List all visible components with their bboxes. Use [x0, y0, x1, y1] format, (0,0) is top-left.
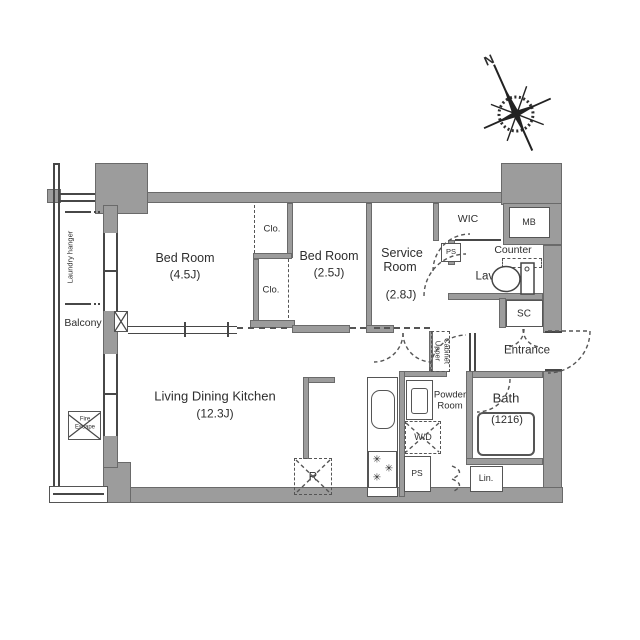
- room-label-wic: WIC: [458, 214, 478, 226]
- kitchen-sink: [371, 390, 395, 429]
- laundry-mark1-dot1: [94, 211, 96, 213]
- lav-counter: [502, 258, 542, 268]
- door-arc-service-left: [374, 333, 403, 362]
- fire-escape-label1: Fire: [80, 417, 90, 424]
- laundry-mark2-dot2: [98, 303, 100, 305]
- compass-needle-ew: [484, 99, 551, 129]
- entrance-jamb-bottom: [545, 369, 562, 371]
- room-label-powder2: Room: [437, 402, 462, 413]
- pipe-shaft-hall-label: PS: [446, 248, 456, 256]
- entrance-step-line1: [469, 333, 471, 371]
- room-label-counter: Counter: [494, 245, 531, 257]
- wall-right-upper: [543, 245, 562, 333]
- sliding-partition: [128, 326, 237, 334]
- entrance-step-line2: [474, 333, 476, 371]
- laundry-hanger-label: Laundry hanger: [66, 231, 75, 284]
- wall-wic-left: [433, 203, 439, 241]
- washer-dryer-label: W/D: [413, 432, 433, 442]
- wall-top-band: [95, 192, 562, 203]
- compass-ring: [494, 92, 539, 137]
- fire-escape-label2: Escape: [75, 425, 95, 432]
- wall-left-c: [103, 435, 118, 468]
- compass-kite-s: [513, 113, 529, 139]
- wall-closet-right-upper: [287, 203, 293, 258]
- meter-box-label: MB: [522, 217, 536, 227]
- compass-needle-diag2: [490, 86, 544, 141]
- door-arc-entrance: [548, 331, 590, 373]
- bedroom2-door: [350, 327, 366, 329]
- closet-upper-door: [254, 205, 255, 253]
- closet-lower-label: Clo.: [263, 286, 280, 297]
- window-ldk-tick: [103, 393, 118, 395]
- shutter-box: [114, 311, 128, 332]
- room-size-bath: (1216): [491, 414, 523, 426]
- stove-burner-icon-3: ✳: [373, 472, 381, 483]
- floor-plan: Laundry hanger Balcony Fire Escape MB PS…: [0, 0, 640, 640]
- window-bedroom1-tick: [103, 270, 118, 272]
- room-label-lav: Lav.: [476, 271, 497, 284]
- room-label-bedroom1: Bed Room: [155, 251, 214, 265]
- room-label-service1: Service: [381, 246, 423, 260]
- service-door-opening: [374, 327, 430, 329]
- window-ldk: [103, 354, 118, 436]
- room-label-bath: Bath: [493, 392, 520, 407]
- laundry-mark2: [65, 303, 91, 305]
- room-label-entrance: Entrance: [504, 345, 550, 358]
- sliding-partition-tick2: [227, 322, 229, 337]
- pipe-shaft-kitchen-label: PS: [411, 469, 422, 479]
- closet-upper-label: Clo.: [264, 225, 281, 236]
- room-label-ldk: Living Dining Kitchen: [154, 390, 275, 405]
- room-size-service: (2.8J): [386, 288, 417, 301]
- wall-right-lower: [543, 371, 562, 491]
- closet-lower-door: [288, 259, 289, 318]
- laundry-mark1: [65, 211, 91, 213]
- room-size-bedroom2: (2.5J): [314, 266, 345, 279]
- balcony-outer-line1: [53, 163, 55, 503]
- wall-bath-left: [466, 371, 473, 465]
- stove-burner-icon-2: ✳: [385, 463, 393, 474]
- wall-sc-left: [499, 298, 506, 328]
- wall-bedroom2-bottom: [292, 325, 350, 333]
- sliding-partition-tick1: [184, 322, 186, 337]
- compass-rose: [462, 49, 567, 165]
- wall-bath-top: [466, 371, 543, 378]
- stove-burner-icon-1: ✳: [373, 454, 381, 465]
- wall-closet-left-lower: [253, 259, 259, 321]
- linen-closet-label: Lin.: [479, 473, 494, 483]
- compass-kite-n: [499, 82, 519, 116]
- room-label-bedroom2: Bed Room: [299, 249, 358, 263]
- window-bedroom1: [103, 233, 118, 311]
- balcony-end-panel: [49, 486, 108, 503]
- compass-needle-diag1: [491, 88, 544, 141]
- room-size-ldk: (12.3J): [196, 407, 233, 420]
- compass-north-label: N: [482, 51, 497, 69]
- laundry-mark1-dot2: [98, 211, 100, 213]
- dashed-wall-clo-ldk: [237, 327, 287, 329]
- balcony-top-cap: [53, 163, 60, 165]
- laundry-mark2-dot1: [94, 303, 96, 305]
- balcony-rail-a: [60, 193, 95, 195]
- wall-bedroom2-service: [366, 203, 372, 330]
- upper-cabinet-label1: Upper: [434, 341, 443, 361]
- room-label-service2: Room: [383, 260, 416, 274]
- balcony-label: Balcony: [64, 318, 101, 330]
- shoe-closet-label: SC: [517, 308, 531, 319]
- compass-kite-w: [493, 111, 517, 126]
- compass-kite-e: [515, 101, 541, 117]
- balcony-rail-b: [60, 200, 95, 202]
- powder-vanity-bowl: [411, 388, 428, 414]
- balcony-end-line: [53, 493, 104, 495]
- pillar-top-right: [501, 163, 562, 205]
- wic-floor-line: [455, 239, 501, 241]
- compass-needle-ns: [494, 65, 532, 151]
- wall-counter-stub-v: [303, 377, 309, 459]
- fridge-label: R: [309, 470, 318, 483]
- door-arc-service-right: [403, 333, 432, 362]
- wall-left-a: [103, 205, 118, 234]
- upper-cabinet-label2: Cabinet: [443, 338, 452, 364]
- wall-lav-bottom: [448, 293, 543, 300]
- entrance-jamb-top: [545, 331, 562, 333]
- wall-bath-bottom: [466, 458, 543, 465]
- room-size-bedroom1: (4.5J): [170, 268, 201, 281]
- balcony-outer-line2: [58, 163, 60, 503]
